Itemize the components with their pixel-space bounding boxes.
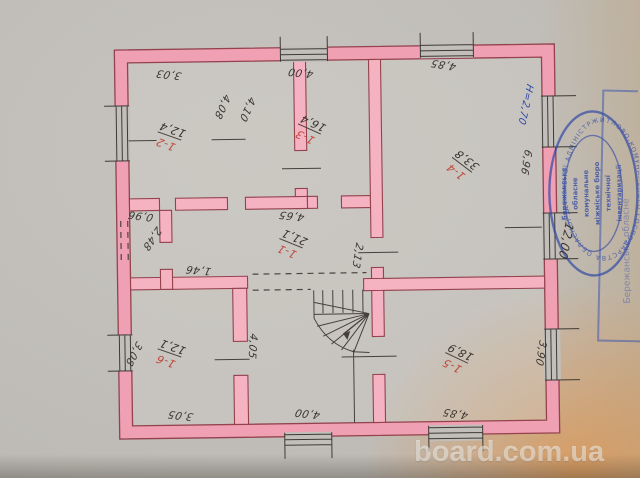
- floor-plan-svg: ЖИТЛОВО-КОМУНАЛЬНОГО ГОСПОДАРСТВА ОБЛАСН…: [0, 0, 640, 478]
- stamp-line: технічної: [604, 174, 613, 211]
- stamp-line: обласне: [571, 177, 579, 210]
- window-top-right: [420, 32, 473, 58]
- dim-label-4-00-top: 4,00: [287, 65, 315, 79]
- dim-label-3-03: 3,03: [155, 67, 183, 81]
- dim-label-4-05: 4,05: [246, 332, 260, 360]
- dim-label-3-05: 3,05: [166, 408, 194, 422]
- dim-label-4-65: 4,65: [278, 208, 306, 222]
- plan-layer: ЖИТЛОВО-КОМУНАЛЬНОГО ГОСПОДАРСТВА ОБЛАСН…: [0, 0, 640, 478]
- window-left-upper: [104, 106, 130, 161]
- window-right-lower: [543, 329, 580, 380]
- watermark: board.com.ua: [414, 436, 604, 469]
- stamp-line: комунальне: [582, 170, 591, 218]
- window-bottom-left: [285, 432, 332, 459]
- floor-area: [128, 57, 547, 426]
- dim-label-1-46: 1,46: [184, 263, 212, 277]
- stamp-line: Бережанське: [560, 167, 569, 220]
- side-stamp-text: Бережанське обласне: [621, 198, 632, 304]
- photo-background: ЖИТЛОВО-КОМУНАЛЬНОГО ГОСПОДАРСТВА ОБЛАСН…: [0, 0, 640, 478]
- window-top-left: [280, 36, 327, 62]
